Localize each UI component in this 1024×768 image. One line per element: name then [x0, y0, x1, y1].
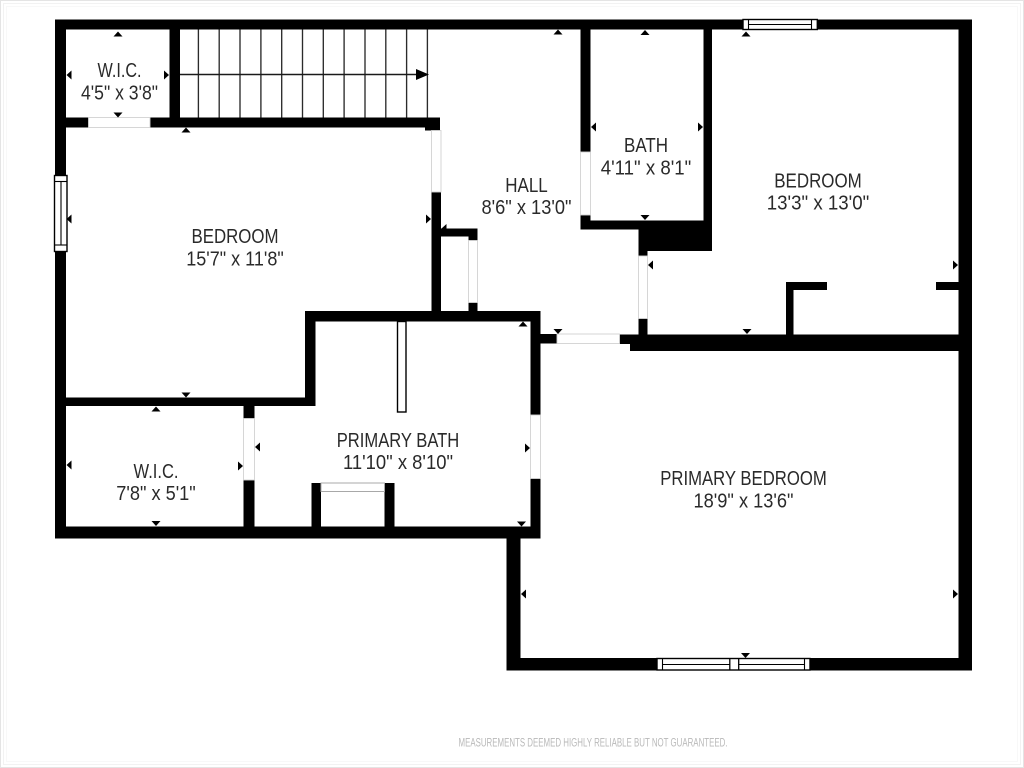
svg-text:8'6" x 13'0": 8'6" x 13'0"	[482, 197, 572, 219]
svg-text:15'7" x 11'8": 15'7" x 11'8"	[186, 249, 284, 271]
svg-text:4'11" x 8'1": 4'11" x 8'1"	[601, 158, 692, 180]
svg-text:18'9" x 13'6": 18'9" x 13'6"	[694, 491, 794, 513]
svg-text:W.I.C.: W.I.C.	[98, 60, 142, 82]
svg-text:13'3" x 13'0": 13'3" x 13'0"	[767, 193, 870, 215]
svg-text:BEDROOM: BEDROOM	[774, 171, 862, 193]
svg-text:PRIMARY BATH: PRIMARY BATH	[337, 430, 460, 452]
svg-text:HALL: HALL	[505, 175, 548, 197]
svg-text:BATH: BATH	[624, 135, 668, 157]
svg-text:PRIMARY BEDROOM: PRIMARY BEDROOM	[660, 468, 827, 490]
svg-text:11'10" x 8'10": 11'10" x 8'10"	[343, 452, 453, 474]
svg-text:W.I.C.: W.I.C.	[134, 461, 179, 483]
svg-text:7'8" x 5'1": 7'8" x 5'1"	[116, 483, 196, 505]
svg-text:4'5" x 3'8": 4'5" x 3'8"	[81, 83, 158, 105]
svg-text:MEASUREMENTS DEEMED HIGHLY REL: MEASUREMENTS DEEMED HIGHLY RELIABLE BUT …	[459, 738, 728, 750]
svg-text:BEDROOM: BEDROOM	[192, 226, 279, 248]
